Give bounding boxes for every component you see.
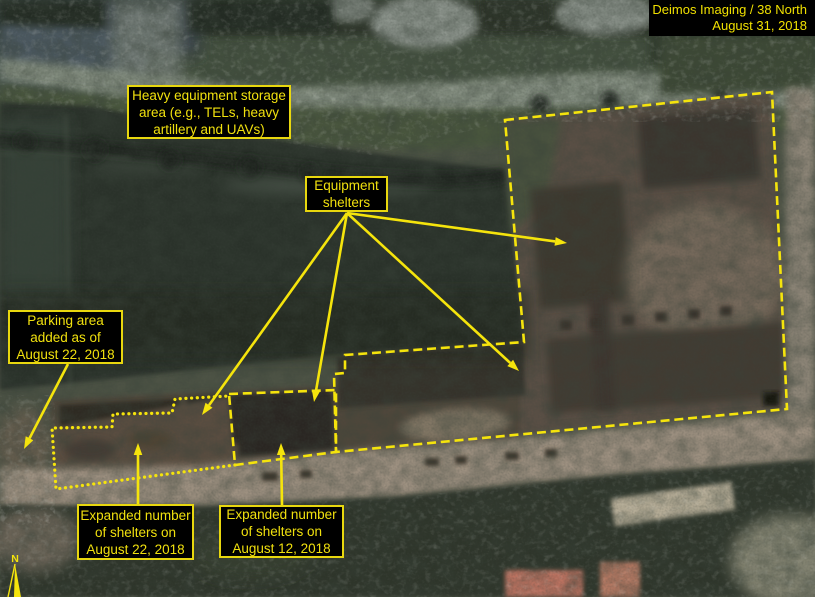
svg-text:N: N — [11, 553, 19, 565]
